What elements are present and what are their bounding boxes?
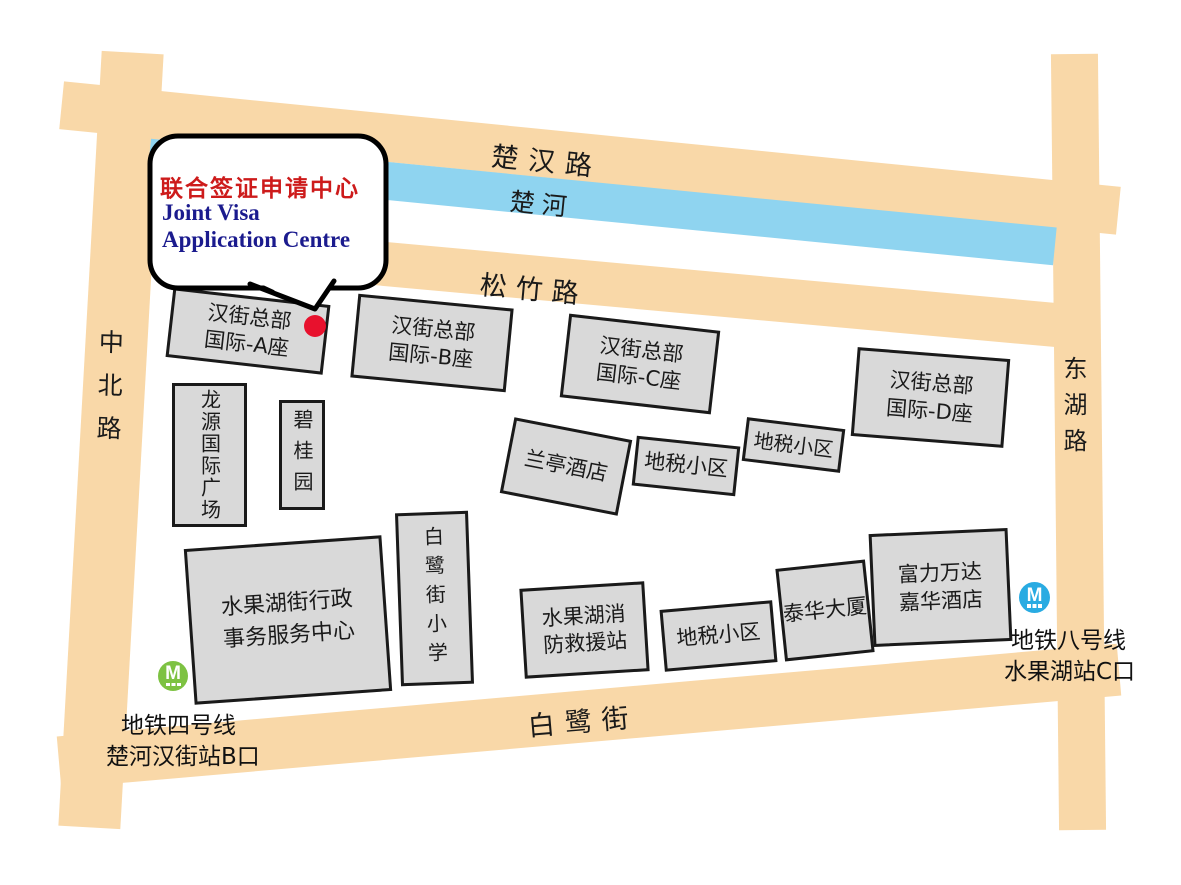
building-label: 白鹭街小学: [419, 526, 450, 672]
building-label: 地税小区: [675, 619, 761, 654]
metro-m-letter: M: [165, 666, 181, 682]
road-label-donghu: 东湖路: [1056, 356, 1091, 464]
location-dot: [304, 315, 326, 337]
building-bailu-school: 白鹭街小学: [395, 511, 474, 686]
building-biguiyuan: 碧桂园: [279, 400, 325, 510]
metro-line8-name: 地铁八号线: [1011, 621, 1126, 655]
building-label: 国际-D座: [885, 394, 974, 428]
building-label: 嘉华酒店: [899, 586, 984, 617]
building-hanjie-c: 汉街总部 国际-C座: [560, 314, 721, 415]
road-label-zhongbei: 中北路: [88, 329, 127, 459]
metro-m-letter: M: [1027, 588, 1043, 604]
building-label: 防救援站: [543, 627, 629, 659]
building-longyuan: 龙源国际广场: [172, 383, 247, 527]
building-dishui-upper: 地税小区: [632, 436, 741, 497]
building-lanting: 兰亭酒店: [500, 417, 632, 515]
metro-line8-exit: 水果湖站C口: [1004, 652, 1135, 686]
building-label: 龙源国际广场: [197, 389, 223, 521]
callout-title-en-line1: Joint Visa: [162, 200, 260, 226]
metro-line8-m-icon: M: [1019, 582, 1050, 613]
map-canvas: 楚汉路 楚河 松竹路 白鹭街 中北路 东湖路 汉街总部 国际-A座 汉街总部 国…: [0, 0, 1181, 885]
building-label: 泰华大厦: [782, 593, 868, 629]
building-hanjie-d: 汉街总部 国际-D座: [851, 347, 1011, 448]
building-label: 地税小区: [752, 427, 835, 463]
building-label: 富力万达: [897, 558, 982, 589]
metro-line4-m-icon: M: [158, 661, 188, 691]
building-label: 地税小区: [643, 448, 729, 484]
building-dishui-right: 地税小区: [742, 417, 846, 473]
building-label: 兰亭酒店: [522, 445, 610, 488]
callout-title-zh: 联合签证申请中心: [160, 169, 360, 203]
callout-title-en-line2: Application Centre: [162, 227, 350, 253]
building-label: 碧桂园: [289, 409, 315, 502]
building-shuiguohu-admin-center: 水果湖街行政 事务服务中心: [184, 535, 392, 704]
metro-wave-glyph: [1027, 604, 1042, 608]
building-fuli-wanda: 富力万达 嘉华酒店: [869, 528, 1013, 647]
building-dishui-lower: 地税小区: [660, 600, 778, 672]
building-taihua: 泰华大厦: [775, 560, 874, 662]
building-fire-station: 水果湖消 防救援站: [519, 581, 649, 678]
metro-wave-glyph: [166, 683, 181, 687]
metro-line4-exit: 楚河汉街站B口: [106, 737, 260, 771]
metro-line4-name: 地铁四号线: [121, 706, 236, 740]
